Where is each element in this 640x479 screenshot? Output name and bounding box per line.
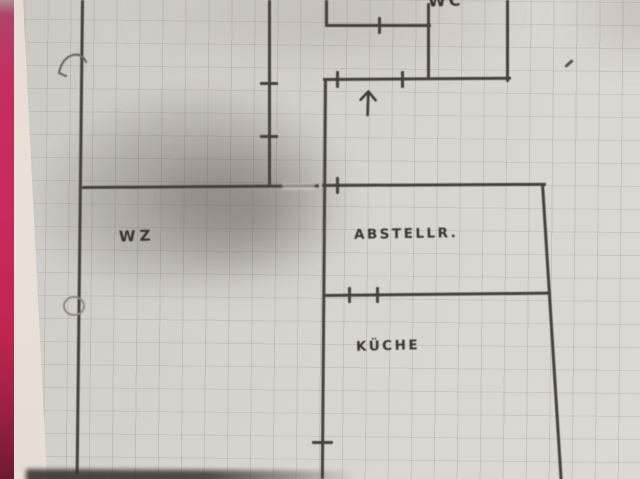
- door-tick-abstellraum: [336, 177, 339, 194]
- erased-wall-segment: [282, 183, 315, 190]
- door-tick-kueche-1: [348, 287, 351, 303]
- floorplan-drawing: WC WZ ABSTELLR. KÜCHE: [0, 0, 640, 479]
- window-tick-2: [260, 135, 278, 138]
- pink-background-edge: [0, 0, 14, 479]
- label-wohnzimmer: WZ: [119, 226, 155, 245]
- wall-wc-mid: [427, 3, 430, 80]
- wall-kueche-top: [323, 292, 551, 297]
- pencil-circle-mark: [61, 293, 89, 319]
- door-tick-wc: [378, 17, 381, 34]
- bottom-shadow-band: [26, 469, 356, 479]
- wall-hall-top: [323, 77, 511, 81]
- wall-center-vertical: [321, 79, 327, 479]
- label-kueche: KÜCHE: [356, 337, 421, 355]
- door-tick-center-bottom: [312, 441, 333, 444]
- pencil-smudge-mark: [564, 59, 573, 68]
- wall-wc-left: [325, 0, 328, 27]
- wall-wc-right: [506, 0, 509, 82]
- label-abstellraum: ABSTELLR.: [354, 225, 459, 243]
- wall-topleft-room-right: [268, 0, 271, 187]
- pencil-hook-mark: [55, 48, 91, 80]
- wall-abstellraum-top: [322, 183, 546, 187]
- floorplan-photo: WC WZ ABSTELLR. KÜCHE: [0, 0, 640, 479]
- wall-right-outer: [541, 184, 563, 479]
- entrance-up-arrow-icon: [354, 84, 384, 120]
- door-tick-kueche-2: [376, 287, 379, 303]
- label-wc: WC: [428, 0, 464, 11]
- door-tick-hall-1: [336, 71, 339, 88]
- door-tick-hall-2: [401, 71, 404, 88]
- window-tick-1: [260, 82, 278, 85]
